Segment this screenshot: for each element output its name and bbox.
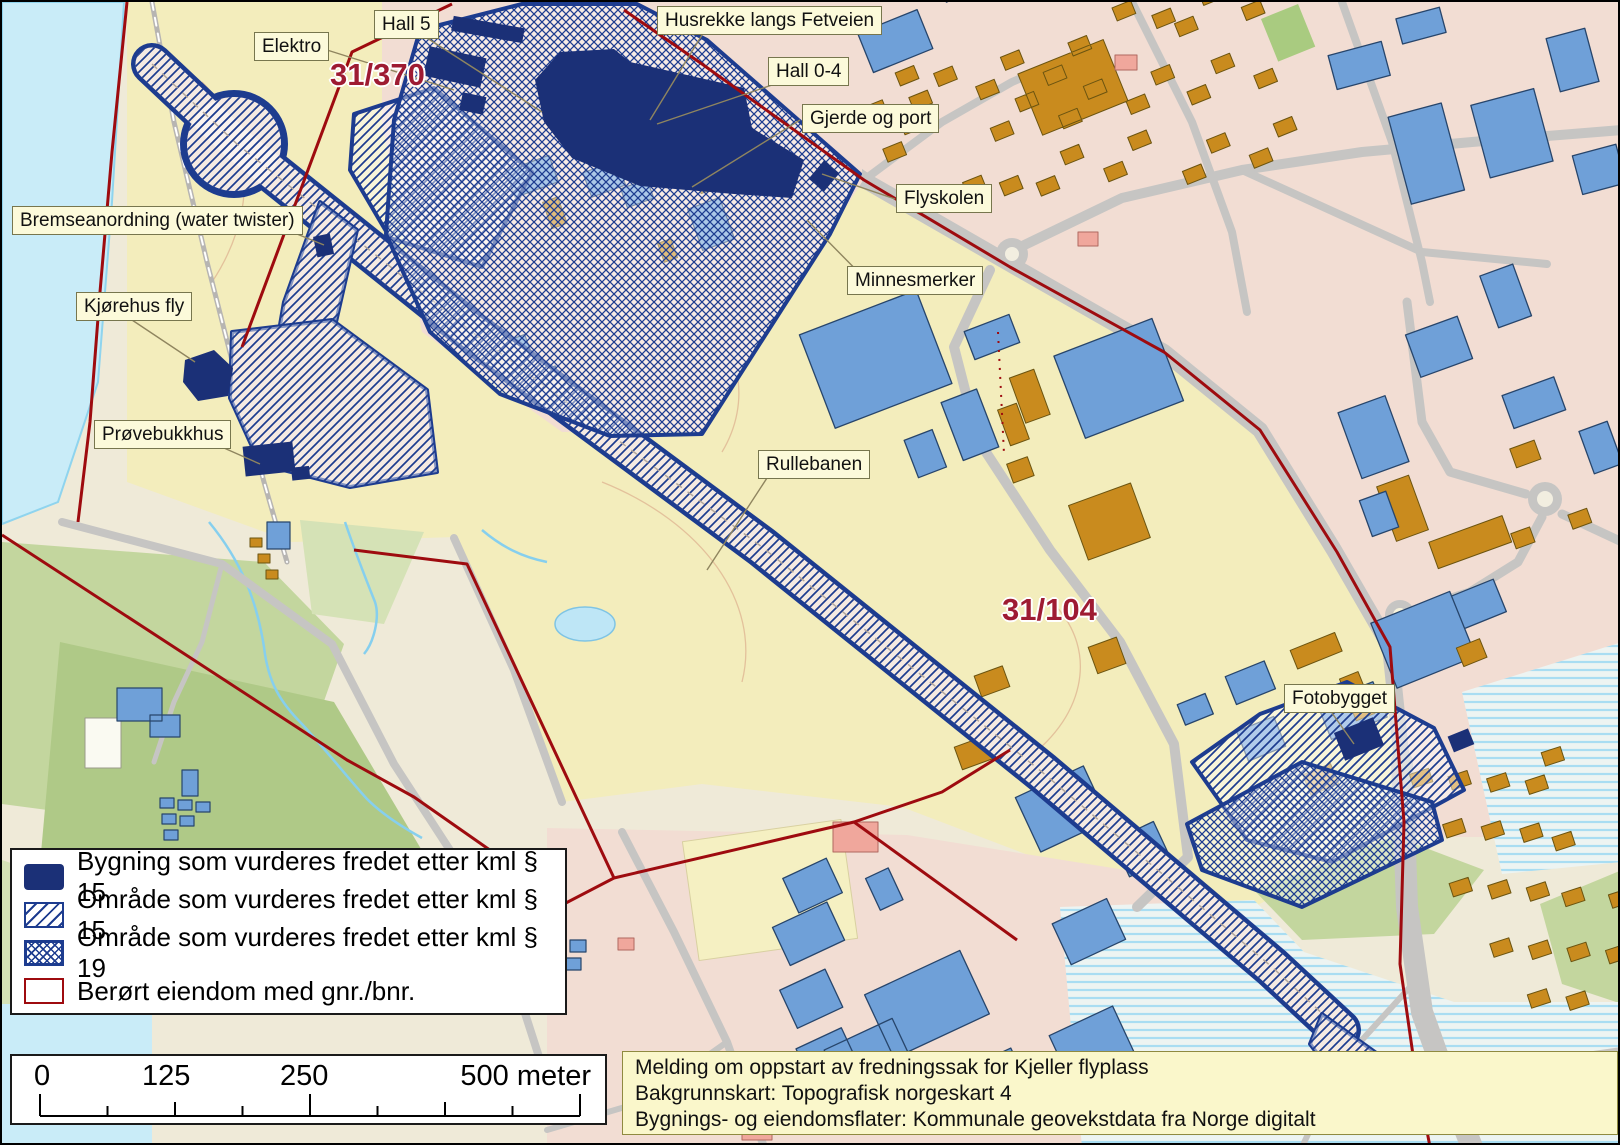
legend: Bygning som vurderes fredet etter kml § …	[10, 848, 567, 1015]
map-label-provebukkhus: Prøvebukkhus	[94, 420, 231, 449]
map-label-minnesmerker: Minnesmerker	[847, 266, 983, 295]
map-label-elektro: Elektro	[254, 32, 329, 61]
map-label-kjorehus-fly: Kjørehus fly	[76, 292, 192, 321]
legend-swatch-red-outline	[24, 978, 64, 1004]
scale-ruler	[12, 1088, 605, 1118]
legend-swatch-diagonal-hatch	[24, 902, 64, 928]
info-line-sources: Bygnings- og eiendomsflater: Kommunale g…	[635, 1107, 1605, 1133]
legend-row-area-19: Område som vurderes fredet etter kml § 1…	[12, 934, 565, 972]
legend-swatch-solid-navy	[24, 864, 64, 890]
scale-bar: 0 125 250 500 meter	[10, 1054, 607, 1125]
map-canvas: Elektro Hall 5 Husrekke langs Fetveien H…	[0, 0, 1620, 1145]
parcel-number-31-104: 31/104	[1002, 592, 1097, 628]
map-label-gjerde-og-port: Gjerde og port	[802, 104, 939, 133]
map-label-rullebanen: Rullebanen	[758, 450, 870, 479]
map-label-bremseanordning: Bremseanordning (water twister)	[12, 206, 303, 235]
parcel-number-31-370: 31/370	[330, 57, 425, 93]
map-label-hall-5: Hall 5	[374, 10, 439, 39]
map-label-husrekke: Husrekke langs Fetveien	[657, 6, 882, 35]
legend-swatch-cross-hatch	[24, 940, 64, 966]
map-label-hall-0-4: Hall 0-4	[768, 57, 849, 86]
legend-label: Berørt eiendom med gnr./bnr.	[77, 976, 415, 1007]
info-line-background: Bakgrunnskart: Topografisk norgeskart 4	[635, 1081, 1605, 1107]
info-box: Melding om oppstart av fredningssak for …	[622, 1051, 1618, 1135]
map-label-fotobygget: Fotobygget	[1284, 684, 1395, 713]
info-line-title: Melding om oppstart av fredningssak for …	[635, 1055, 1605, 1081]
map-label-flyskolen: Flyskolen	[896, 184, 992, 213]
